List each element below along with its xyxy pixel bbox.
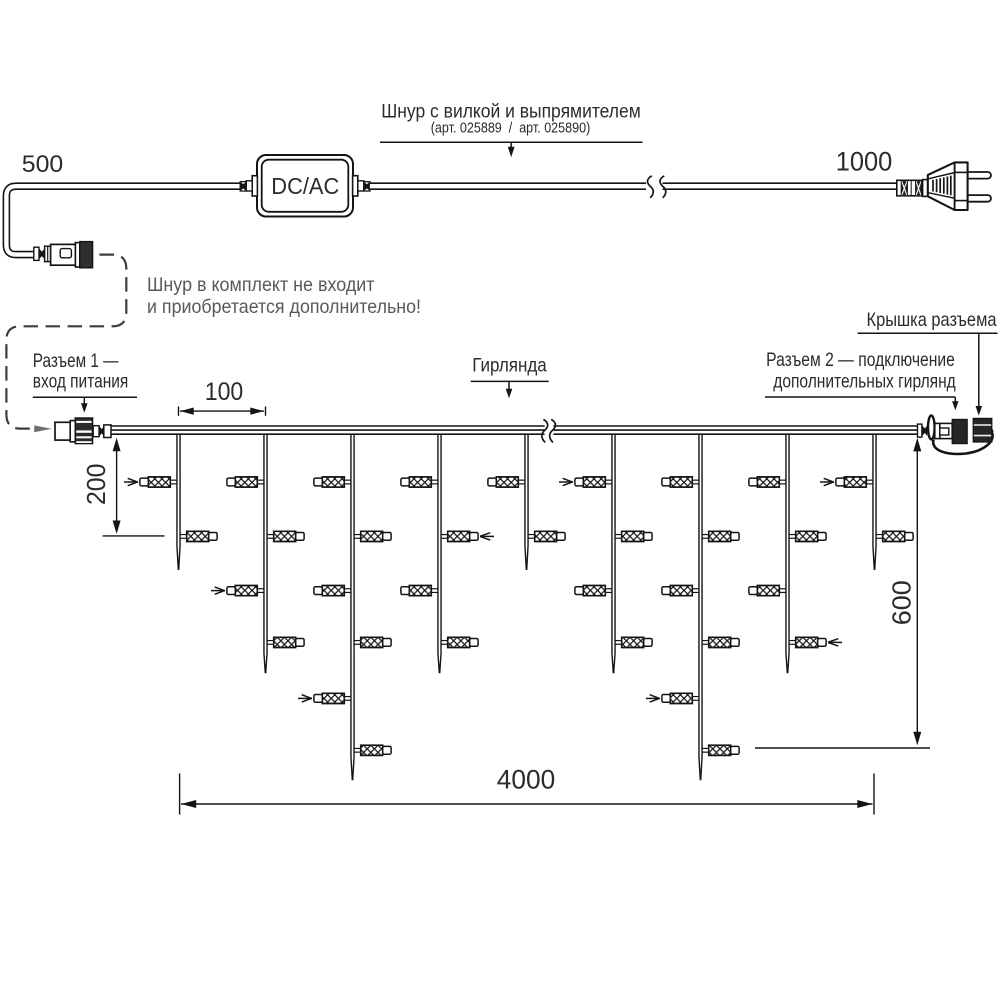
svg-text:1000: 1000 xyxy=(836,147,893,177)
svg-text:дополнительных гирлянд: дополнительных гирлянд xyxy=(773,370,956,392)
svg-text:600: 600 xyxy=(886,580,916,625)
svg-text:Гирлянда: Гирлянда xyxy=(472,354,547,376)
svg-text:200: 200 xyxy=(81,464,111,506)
svg-text:Шнур с вилкой и выпрямителем: Шнур с вилкой и выпрямителем xyxy=(381,100,641,122)
svg-text:Разъем 2 — подключение: Разъем 2 — подключение xyxy=(766,349,955,371)
svg-text:500: 500 xyxy=(22,151,64,178)
svg-text:(арт. 025889 / арт. 025890): (арт. 025889 / арт. 025890) xyxy=(431,120,591,136)
svg-text:и приобретается дополнительно!: и приобретается дополнительно! xyxy=(147,296,421,318)
svg-text:100: 100 xyxy=(205,378,244,406)
svg-text:вход питания: вход питания xyxy=(33,371,129,392)
svg-text:DC/AC: DC/AC xyxy=(271,173,339,199)
svg-text:Разъем 1 —: Разъем 1 — xyxy=(33,351,119,372)
svg-text:Шнур в комплект не входит: Шнур в комплект не входит xyxy=(147,274,375,296)
svg-text:Крышка разъема: Крышка разъема xyxy=(867,309,997,331)
svg-text:4000: 4000 xyxy=(497,765,556,795)
